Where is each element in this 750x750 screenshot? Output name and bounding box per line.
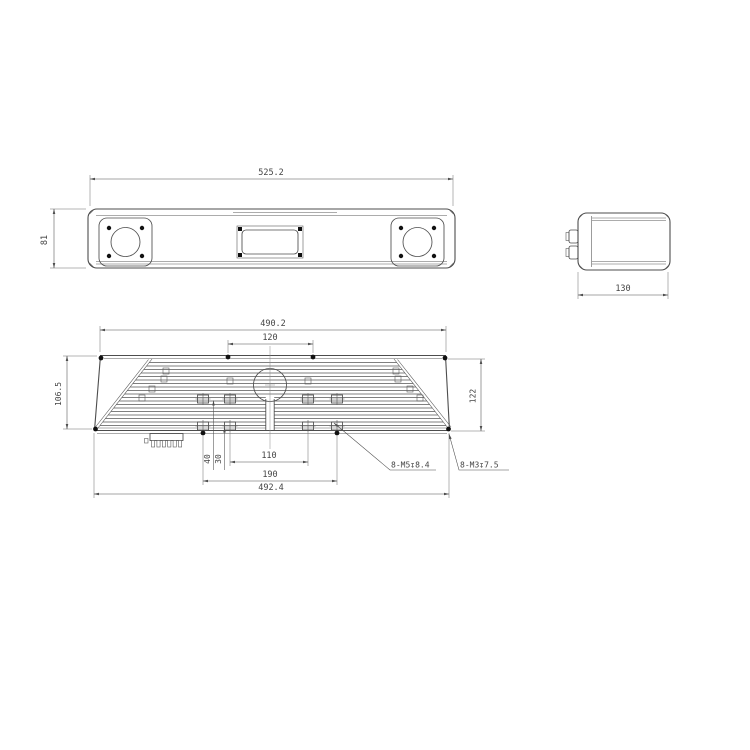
front-height-dimension: 81 bbox=[40, 209, 86, 268]
m3-hole bbox=[335, 431, 340, 436]
connector-port bbox=[569, 246, 578, 259]
m3-hole bbox=[201, 431, 206, 436]
m3-hole bbox=[99, 356, 104, 361]
technical-drawing: 525.2 81 130 bbox=[0, 0, 750, 750]
dim-bottom-width: 492.4 bbox=[258, 483, 284, 493]
m5-hole bbox=[330, 393, 345, 405]
screw-dot bbox=[298, 227, 302, 231]
dim-offset-b: 30 bbox=[214, 454, 223, 464]
dim-bottom-top-width: 490.2 bbox=[260, 319, 286, 329]
dim-front-width: 525.2 bbox=[258, 168, 284, 178]
screw-dot bbox=[298, 253, 302, 257]
hole-span-top-dimension: 120 bbox=[228, 333, 313, 353]
m5-hole bbox=[223, 393, 238, 405]
dim-offset-a: 40 bbox=[203, 454, 212, 464]
m3-hole bbox=[443, 356, 448, 361]
drawing-page: 525.2 81 130 bbox=[0, 0, 750, 750]
m5-hole bbox=[196, 393, 211, 405]
screw-dot bbox=[107, 254, 111, 258]
hole-span-inner-dimension: 110 bbox=[230, 432, 308, 466]
screw-dot bbox=[238, 227, 242, 231]
connector-port bbox=[569, 230, 578, 243]
screw-dot bbox=[432, 254, 436, 258]
connector-cap bbox=[566, 249, 569, 257]
bottom-connector bbox=[145, 434, 184, 448]
m5-hole bbox=[301, 420, 316, 432]
screw-dot bbox=[140, 226, 144, 230]
dim-side-depth: 130 bbox=[615, 284, 630, 294]
screw-dot bbox=[238, 253, 242, 257]
connector-cap bbox=[566, 233, 569, 241]
side-view: 130 bbox=[566, 213, 670, 299]
label-thread-m3: 8-M3↧7.5 bbox=[460, 461, 499, 470]
m3-hole bbox=[93, 427, 98, 432]
m3-hole bbox=[446, 427, 451, 432]
front-width-dimension: 525.2 bbox=[90, 168, 453, 206]
dim-hole-span-inner: 110 bbox=[261, 451, 276, 461]
dim-front-height: 81 bbox=[40, 235, 50, 245]
m3-thread-callout: 8-M3↧7.5 bbox=[449, 434, 509, 470]
m5-hole bbox=[301, 393, 316, 405]
screw-dot bbox=[107, 226, 111, 230]
dim-left-height: 106.5 bbox=[54, 382, 63, 406]
label-thread-m5: 8-M5↧8.4 bbox=[391, 461, 430, 470]
front-view: 525.2 81 bbox=[40, 168, 455, 268]
left-height-dimension: 106.5 bbox=[54, 356, 97, 429]
side-depth-dimension: 130 bbox=[578, 272, 668, 299]
screw-dot bbox=[140, 254, 144, 258]
m3-hole bbox=[226, 355, 231, 360]
screw-dot bbox=[432, 226, 436, 230]
screw-dot bbox=[399, 254, 403, 258]
right-height-dimension: 122 bbox=[448, 359, 485, 431]
dim-right-height: 122 bbox=[469, 389, 478, 404]
m5-hole bbox=[196, 420, 211, 432]
bottom-view: 490.2 120 106.5 122 40 30 110 bbox=[54, 319, 509, 498]
screw-dot bbox=[399, 226, 403, 230]
dim-hole-span-top: 120 bbox=[262, 333, 277, 343]
dim-hole-span-outer: 190 bbox=[262, 470, 277, 480]
m3-hole bbox=[311, 355, 316, 360]
side-connectors bbox=[566, 230, 578, 259]
